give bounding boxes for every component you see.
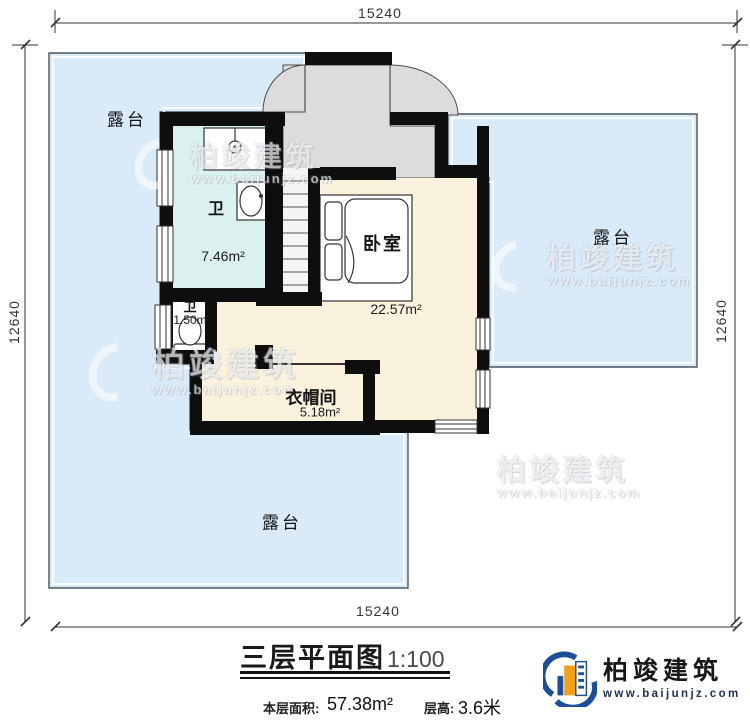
title-text: 三层平面图 — [240, 643, 385, 673]
floor-plan-page: 柏竣建筑 www.baijunjz.com 柏竣建筑 www.baijunjz.… — [0, 0, 750, 725]
dimension-left: 12640 — [6, 300, 22, 344]
terrace-bottom-label: 露台 — [262, 509, 302, 534]
window-icon — [155, 305, 171, 349]
dimension-bottom: 15240 — [356, 603, 400, 619]
title-underline-thin — [240, 677, 450, 679]
floor-area-label: 本层面积: — [263, 698, 319, 717]
floor-height-label: 层高: — [424, 698, 454, 717]
bathroom-area: 7.46m² — [201, 248, 245, 264]
terrace-right-label: 露台 — [593, 224, 633, 249]
title-underline-thick — [240, 671, 450, 674]
bathroom-label: 卫 — [208, 195, 224, 219]
window-icon — [157, 226, 173, 282]
logo-icon — [543, 651, 597, 707]
floor-area-value: 57.38m² — [327, 694, 393, 715]
window-icon — [476, 318, 490, 350]
title-scale: 1:100 — [387, 646, 445, 672]
door-arc-icon — [390, 65, 458, 115]
logo-company-name: 柏竣建筑 — [603, 658, 741, 684]
bedroom-area: 22.57m² — [370, 301, 421, 317]
window-icon — [476, 370, 490, 408]
window-icon — [157, 150, 173, 206]
small-bathroom-area: 1.50m² — [173, 313, 210, 327]
shower-icon — [204, 128, 266, 170]
sink-icon — [237, 182, 266, 220]
dimension-right: 12640 — [713, 299, 729, 343]
bedroom-label: 卧室 — [363, 230, 403, 256]
drawing-title: 三层平面图1:100 — [240, 636, 445, 675]
logo-website: www.baijunjz.com — [603, 688, 741, 700]
floor-height-value: 3.6米 — [458, 694, 501, 720]
cloakroom-area: 5.18m² — [300, 405, 340, 420]
window-icon — [435, 420, 477, 433]
company-logo: 柏竣建筑 www.baijunjz.com — [543, 651, 741, 707]
terrace-top-label: 露台 — [107, 106, 147, 131]
dimension-top: 15240 — [358, 5, 402, 21]
